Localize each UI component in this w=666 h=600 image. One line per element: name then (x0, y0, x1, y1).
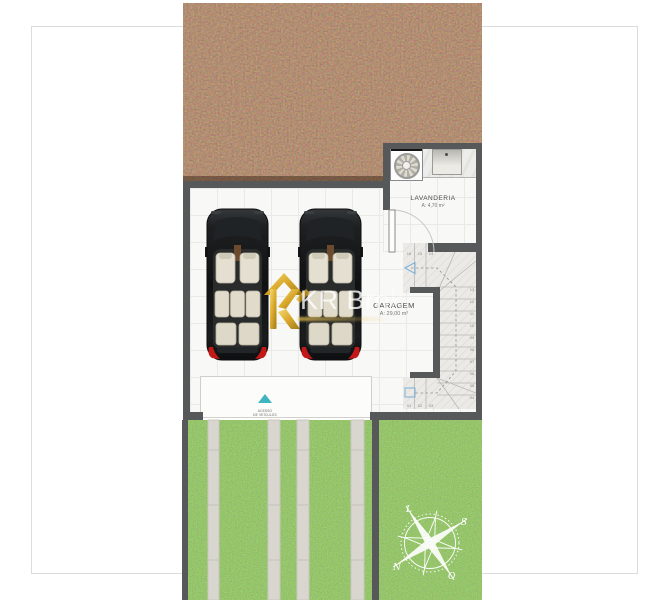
stair-step-number: 09 (470, 335, 475, 340)
wall-bottom-right (370, 412, 482, 420)
laundry-room-area: A: 4,70 m² (393, 203, 473, 209)
compass-north-label: N (392, 563, 402, 573)
wall-bottom-left (183, 412, 203, 420)
stair-step-number: 02 (418, 403, 423, 408)
door-swing-arc (392, 210, 434, 252)
stair-step-number: 06 (470, 371, 475, 376)
driveway-strip (208, 420, 219, 600)
compass-west-label: O (448, 572, 456, 582)
laundry-door (381, 205, 437, 255)
access-label-text: ACESSO DE VEÍCULOS (240, 409, 290, 417)
driveway-strip (297, 420, 309, 600)
floor-plan-render: 01020304050607080910111213141516 (0, 0, 666, 600)
watermark-tagline (298, 317, 390, 321)
stair-step-number: 03 (429, 403, 434, 408)
sink-drain (445, 153, 448, 156)
compass-south-label: S (461, 518, 467, 528)
access-label-line2: DE VEÍCULOS (240, 413, 290, 417)
wall-stairwell-stub-top (410, 287, 433, 293)
driveway-strip (351, 420, 364, 600)
staircase: 01020304050607080910111213141516 (403, 243, 482, 412)
compass-east-label: L (405, 505, 412, 515)
compass-star-main (383, 498, 479, 594)
laundry-room-label: LAVANDERIA A: 4,70 m² (393, 195, 473, 209)
washer-agitator (402, 161, 411, 170)
stair-step-number: 01 (407, 403, 412, 408)
stair-step-number: 08 (470, 347, 475, 352)
wall-laundry-top (383, 143, 482, 149)
stair-step-number: 10 (470, 323, 475, 328)
stair-step-number: 07 (470, 359, 475, 364)
wall-left (183, 181, 190, 412)
door-leaf (389, 210, 395, 252)
wall-stairwell-stub-bottom (410, 372, 433, 378)
laundry-room-name: LAVANDERIA (393, 195, 473, 202)
washing-machine (390, 146, 423, 181)
stair-step-number: 13 (470, 287, 475, 292)
garage-room-label: GARAGEM A: 29,00 m² (352, 301, 436, 317)
garage-room-name: GARAGEM (352, 301, 436, 310)
driveway-strip (268, 420, 280, 600)
stair-step-number: 12 (470, 299, 475, 304)
compass-rose-icon: N S L O (383, 498, 479, 594)
car-left (205, 207, 270, 362)
car-right (298, 207, 363, 362)
stair-step-number: 05 (470, 383, 475, 388)
boundary-wall-divider (372, 420, 379, 600)
boundary-wall-left (182, 420, 188, 600)
stair-step-number: 04 (470, 395, 475, 400)
vehicle-access-marker: ACESSO DE VEÍCULOS (240, 390, 290, 417)
wall-garage-top (183, 181, 390, 188)
wall-laundry-left (383, 143, 390, 210)
access-arrow-icon (258, 394, 272, 403)
wall-right (476, 143, 482, 420)
